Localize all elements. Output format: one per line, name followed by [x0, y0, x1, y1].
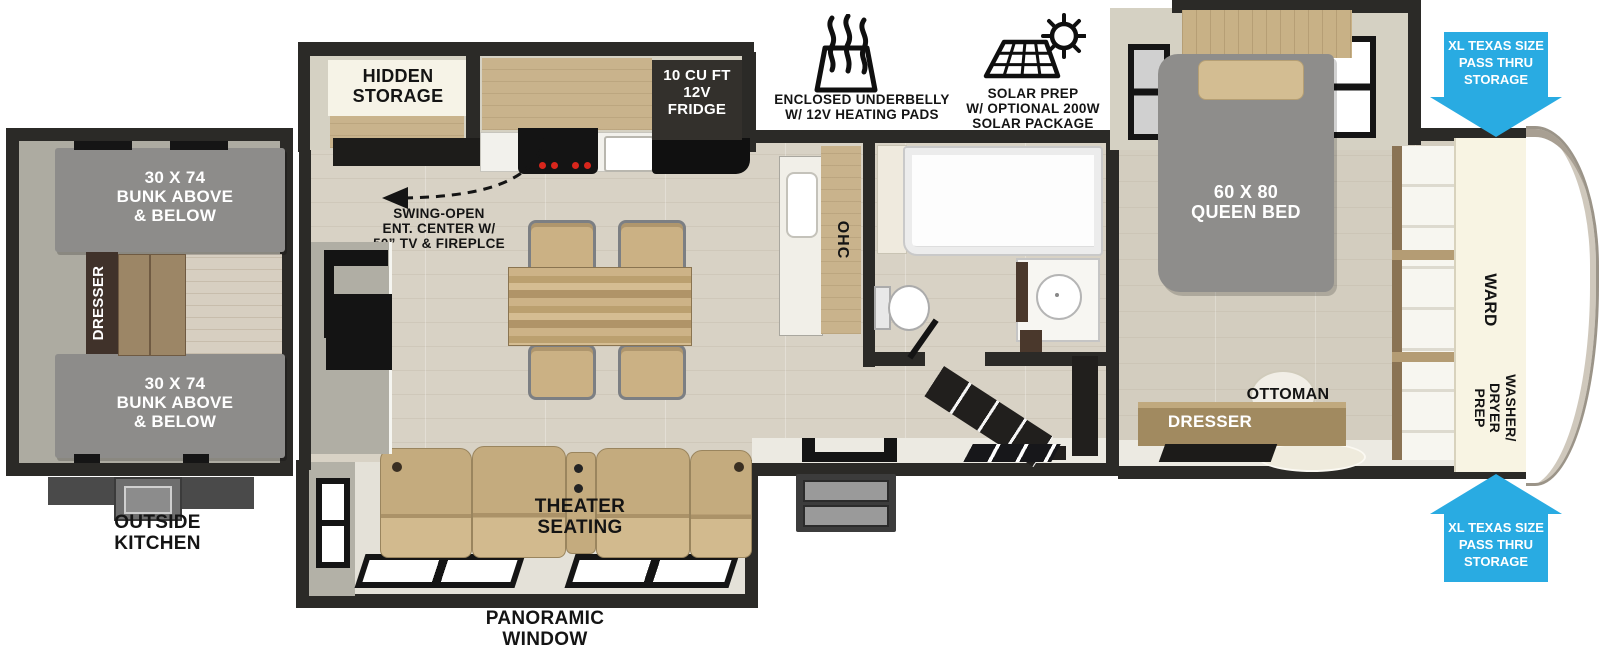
bunk-top-label: 30 X 74 BUNK ABOVE & BELOW: [90, 168, 260, 225]
entry-step: [803, 480, 889, 502]
dining-chair: [618, 344, 686, 400]
pass-thru-arrow-up-icon: XL TEXAS SIZE PASS THRU STORAGE: [1444, 514, 1548, 582]
toilet-bowl: [888, 285, 930, 331]
wardrobe-shelves: [1392, 146, 1454, 460]
bunk-window: [74, 141, 132, 150]
solar-label: SOLAR PREP W/ OPTIONAL 200W SOLAR PACKAG…: [952, 86, 1114, 131]
underbelly-label: ENCLOSED UNDERBELLY W/ 12V HEATING PADS: [772, 92, 952, 122]
bathroom-left-wall: [863, 130, 875, 367]
outside-kitchen-tray: [124, 486, 172, 514]
bedroom-divider-wall: [1106, 130, 1119, 470]
bunk-bottom-label: 30 X 74 BUNK ABOVE & BELOW: [90, 374, 260, 431]
vanity-sink: [1036, 274, 1082, 320]
outside-kitchen-unit: [178, 477, 254, 509]
theater-seating-label: THEATER SEATING: [520, 496, 640, 539]
hidden-storage-left-wall: [298, 52, 310, 152]
queen-bed-label: 60 X 80 QUEEN BED: [1158, 182, 1334, 222]
entry-vent: [963, 444, 1061, 462]
cupholder-icon: [574, 464, 583, 473]
panoramic-window-label: PANORAMIC WINDOW: [455, 608, 635, 649]
front-cap: [1526, 126, 1599, 486]
island-sink: [786, 172, 818, 238]
hidden-storage-label: HIDDEN STORAGE: [330, 66, 466, 106]
pass-thru-arrowhead-up: [1430, 474, 1562, 514]
burner-icon: [572, 162, 579, 169]
kitchen-slide-top-wall: [298, 42, 754, 56]
solar-panel-sun-icon: [980, 12, 1086, 92]
bedroom-dresser-label: DRESSER: [1150, 412, 1270, 431]
bunk-window: [183, 454, 209, 463]
steps-rail: [1072, 356, 1098, 456]
washer-dryer-label: WASHER/ DRYER PREP: [1466, 353, 1518, 463]
outside-kitchen-unit: [48, 477, 114, 505]
wardrobe-shelf: [1392, 250, 1454, 260]
seat-button-icon: [734, 462, 744, 472]
swing-open-arrow-icon: [378, 118, 558, 210]
bunk-room-floor: [184, 254, 282, 354]
refrigerator: [652, 138, 750, 174]
pass-thru-arrow-down-icon: XL TEXAS SIZE PASS THRU STORAGE: [1444, 32, 1548, 98]
theater-slide-bottom-wall: [296, 594, 758, 608]
outside-kitchen-label: OUTSIDE KITCHEN: [95, 512, 220, 555]
fridge-label: 10 CU FT 12V FRIDGE: [654, 68, 740, 118]
heat-waves-icon: [808, 14, 884, 94]
tv-icon: [326, 294, 392, 370]
floorplan-diagram: THEATER SEATING PANORAMIC WINDOW 30 X 74…: [0, 0, 1600, 649]
panoramic-window-left: [354, 554, 525, 588]
theater-side-window: [316, 478, 350, 568]
ward-label: WARD: [1480, 245, 1500, 355]
sink-drain-icon: [1055, 293, 1059, 297]
main-left-wall: [299, 130, 311, 470]
entry-door-threshold: [802, 452, 897, 462]
kitchen-sink: [604, 136, 654, 172]
bedroom-slide-right-wall: [1408, 0, 1421, 145]
wardrobe-shelf: [1392, 352, 1454, 362]
seat-button-icon: [392, 462, 402, 472]
bunk-window: [170, 141, 228, 150]
dining-chair: [528, 344, 596, 400]
vanity-cabinet: [1020, 330, 1042, 352]
burner-icon: [584, 162, 591, 169]
bedroom-lower-window: [1159, 444, 1278, 462]
ohc-label: OHC: [831, 195, 851, 285]
entry-step: [803, 505, 889, 527]
main-top-wall: [745, 130, 1110, 143]
dining-table: [508, 267, 692, 346]
cupholder-icon: [574, 484, 583, 493]
bathroom-bottom-wall: [985, 352, 1118, 366]
bunk-window: [74, 454, 100, 463]
bunk-wardrobe-cabinet: [118, 254, 186, 356]
kitchen-slide-right-wall: [742, 52, 756, 152]
panoramic-window-right: [564, 554, 739, 588]
pillow: [1198, 60, 1304, 100]
vanity-cabinet: [1016, 262, 1028, 322]
headboard: [1182, 10, 1352, 58]
bunk-dresser-label: DRESSER: [91, 253, 113, 353]
pass-thru-arrowhead-down: [1430, 97, 1562, 137]
bathtub: [903, 146, 1103, 256]
theater-slide-left-wall: [296, 460, 309, 608]
